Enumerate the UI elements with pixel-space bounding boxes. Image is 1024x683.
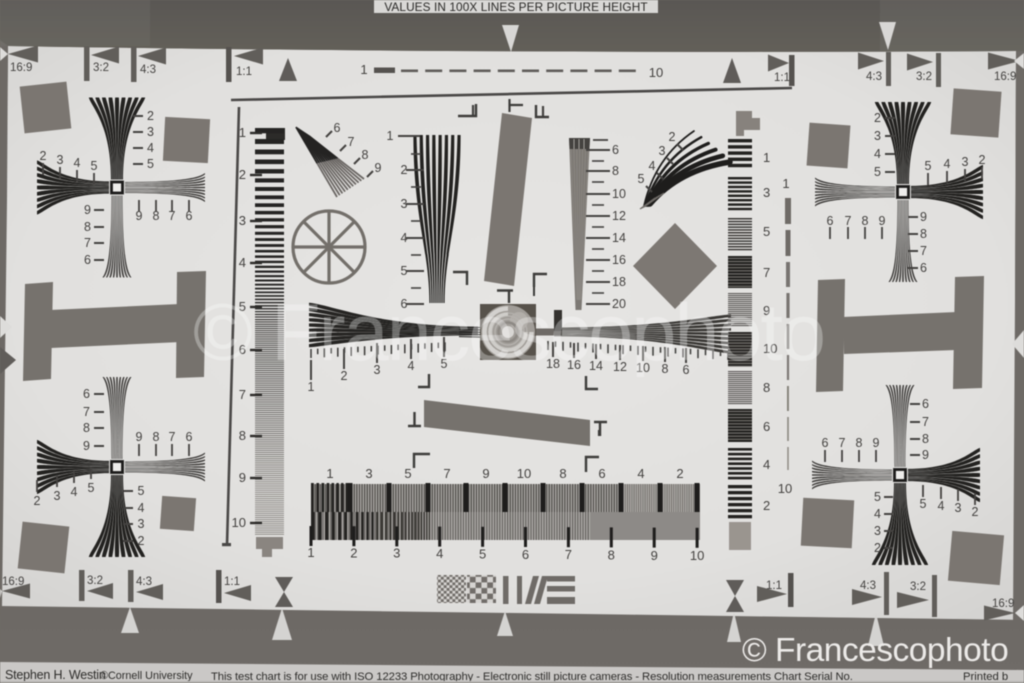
svg-text:4: 4	[239, 255, 246, 270]
svg-text:9: 9	[879, 214, 886, 228]
svg-text:3:2: 3:2	[910, 581, 926, 593]
svg-text:16:9: 16:9	[992, 598, 1014, 610]
svg-text:1:1: 1:1	[224, 576, 240, 588]
svg-text:4: 4	[71, 485, 78, 499]
svg-text:10: 10	[232, 515, 246, 530]
svg-text:7: 7	[169, 430, 176, 444]
svg-text:Printed b: Printed b	[963, 671, 1008, 683]
svg-text:6: 6	[920, 261, 927, 275]
svg-text:4: 4	[436, 546, 443, 561]
svg-text:16: 16	[612, 253, 626, 267]
svg-text:5: 5	[874, 490, 881, 504]
svg-text:2: 2	[34, 494, 41, 508]
svg-text:9: 9	[136, 430, 143, 444]
svg-text:6: 6	[763, 419, 770, 434]
svg-text:Stephen H. Westin: Stephen H. Westin	[5, 668, 106, 682]
svg-text:6: 6	[822, 436, 829, 450]
svg-text:8: 8	[920, 227, 927, 241]
svg-text:1: 1	[360, 62, 367, 77]
svg-text:7: 7	[84, 236, 91, 250]
svg-text:8: 8	[84, 220, 91, 234]
svg-text:5: 5	[874, 165, 881, 179]
svg-text:6: 6	[922, 397, 929, 411]
svg-text:7: 7	[763, 265, 770, 280]
svg-text:10: 10	[517, 466, 531, 481]
svg-text:4:3: 4:3	[866, 71, 882, 83]
svg-text:18: 18	[612, 275, 626, 289]
svg-text:3: 3	[57, 153, 64, 167]
svg-text:10: 10	[778, 481, 792, 496]
svg-text:VALUES IN 100X LINES PER PICTU: VALUES IN 100X LINES PER PICTURE HEIGHT	[384, 0, 647, 14]
svg-text:2: 2	[239, 167, 246, 182]
svg-text:6: 6	[186, 430, 193, 444]
svg-text:9: 9	[83, 439, 90, 453]
svg-text:5: 5	[920, 497, 927, 511]
svg-text:7: 7	[565, 547, 572, 562]
svg-text:5: 5	[88, 481, 95, 495]
svg-text:5: 5	[138, 484, 145, 498]
svg-text:4: 4	[874, 507, 881, 521]
svg-text:6: 6	[334, 121, 341, 135]
svg-text:3: 3	[365, 466, 372, 481]
svg-text:6: 6	[827, 214, 834, 228]
svg-text:1: 1	[307, 545, 314, 560]
svg-text:7: 7	[239, 387, 246, 402]
svg-text:9: 9	[239, 470, 246, 485]
svg-text:8: 8	[153, 430, 160, 444]
svg-text:4: 4	[763, 457, 770, 472]
svg-text:7: 7	[839, 436, 846, 450]
svg-text:2: 2	[874, 111, 881, 125]
svg-text:6: 6	[522, 547, 529, 562]
svg-text:10: 10	[612, 187, 626, 201]
svg-text:2: 2	[350, 545, 357, 560]
svg-text:4: 4	[874, 147, 881, 161]
svg-text:7: 7	[348, 135, 355, 149]
svg-text:3: 3	[147, 125, 154, 139]
svg-text:7: 7	[845, 214, 852, 228]
svg-text:8: 8	[83, 421, 90, 435]
svg-text:4: 4	[944, 157, 951, 171]
svg-text:1: 1	[326, 466, 333, 481]
svg-text:©Cornell University: ©Cornell University	[100, 670, 193, 682]
svg-text:5: 5	[925, 159, 932, 173]
svg-text:3:2: 3:2	[93, 62, 109, 74]
svg-text:3: 3	[962, 155, 969, 169]
svg-text:1: 1	[782, 176, 789, 191]
svg-text:16:9: 16:9	[994, 71, 1016, 83]
svg-text:6: 6	[598, 466, 605, 481]
svg-text:8: 8	[362, 148, 369, 162]
svg-text:5: 5	[638, 172, 645, 186]
svg-text:7: 7	[922, 415, 929, 429]
svg-text:1:1: 1:1	[236, 66, 252, 78]
svg-text:4: 4	[649, 159, 656, 173]
svg-text:9: 9	[375, 161, 382, 175]
svg-text:3: 3	[659, 144, 666, 158]
svg-text:7: 7	[83, 405, 90, 419]
svg-text:© Francescophoto: © Francescophoto	[193, 288, 824, 378]
svg-text:4: 4	[138, 501, 145, 515]
svg-text:4: 4	[147, 141, 154, 155]
svg-text:8: 8	[862, 214, 869, 228]
svg-text:8: 8	[763, 380, 770, 395]
svg-text:2: 2	[669, 130, 676, 144]
svg-text:© Francescophoto: © Francescophoto	[742, 632, 1008, 669]
svg-text:5: 5	[147, 157, 154, 171]
svg-text:3: 3	[54, 489, 61, 503]
svg-text:8: 8	[239, 428, 246, 443]
svg-text:2: 2	[147, 109, 154, 123]
svg-text:6: 6	[612, 143, 619, 157]
svg-text:6: 6	[83, 387, 90, 401]
svg-text:9: 9	[84, 203, 91, 217]
svg-text:3: 3	[239, 213, 246, 228]
svg-text:4: 4	[637, 466, 644, 481]
svg-text:2: 2	[40, 149, 47, 163]
svg-text:8: 8	[856, 436, 863, 450]
svg-text:8: 8	[608, 548, 615, 563]
svg-text:1: 1	[763, 150, 770, 165]
svg-text:4:3: 4:3	[136, 576, 152, 588]
svg-text:3: 3	[955, 501, 962, 515]
svg-text:7: 7	[443, 466, 450, 481]
svg-text:5: 5	[479, 546, 486, 561]
svg-text:4:3: 4:3	[860, 580, 876, 592]
svg-text:1: 1	[308, 380, 315, 394]
svg-text:3: 3	[874, 524, 881, 538]
svg-text:4: 4	[938, 499, 945, 513]
svg-text:8: 8	[612, 164, 619, 178]
svg-text:12: 12	[612, 209, 626, 223]
svg-text:10: 10	[649, 65, 663, 80]
svg-text:1:1: 1:1	[774, 72, 790, 84]
svg-text:9: 9	[651, 548, 658, 563]
svg-text:2: 2	[138, 534, 145, 548]
svg-text:9: 9	[922, 448, 929, 462]
svg-text:10: 10	[690, 548, 704, 563]
svg-text:5: 5	[404, 466, 411, 481]
svg-text:2: 2	[979, 153, 986, 167]
svg-text:7: 7	[920, 244, 927, 258]
svg-text:16:9: 16:9	[10, 62, 32, 74]
svg-text:2: 2	[972, 505, 979, 519]
svg-text:1: 1	[239, 125, 246, 140]
svg-text:2: 2	[676, 466, 683, 481]
svg-text:8: 8	[559, 466, 566, 481]
svg-text:3: 3	[763, 185, 770, 200]
svg-text:5: 5	[91, 159, 98, 173]
svg-text:14: 14	[612, 231, 626, 245]
svg-text:9: 9	[920, 210, 927, 224]
svg-text:3: 3	[138, 517, 145, 531]
svg-text:8: 8	[922, 432, 929, 446]
svg-text:3:2: 3:2	[916, 71, 932, 83]
svg-text:5: 5	[763, 224, 770, 239]
svg-text:2: 2	[763, 498, 770, 513]
svg-text:6: 6	[84, 253, 91, 267]
svg-text:3:2: 3:2	[87, 575, 103, 587]
svg-text:3: 3	[393, 546, 400, 561]
svg-text:9: 9	[482, 466, 489, 481]
svg-text:2: 2	[874, 541, 881, 555]
svg-text:1: 1	[387, 129, 394, 143]
svg-text:3: 3	[874, 129, 881, 143]
svg-text:4:3: 4:3	[140, 64, 156, 76]
svg-text:4: 4	[74, 156, 81, 170]
svg-text:9: 9	[873, 436, 880, 450]
